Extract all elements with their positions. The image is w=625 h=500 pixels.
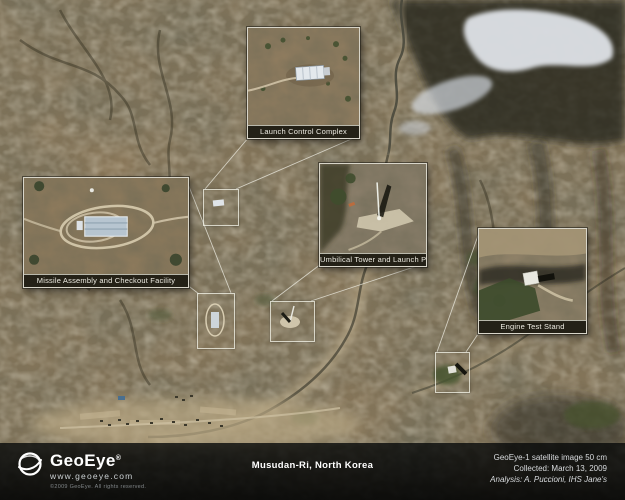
target-box-umbilical-tower-launch-pad	[270, 301, 315, 342]
inset-label-engine-test-stand: Engine Test Stand	[479, 320, 586, 333]
target-box-launch-control-complex	[203, 189, 239, 226]
inset-photo-launch-control-complex	[248, 28, 359, 125]
brand-copyright: ©2009 GeoEye. All rights reserved.	[50, 484, 146, 490]
inset-label-missile-assembly-facility: Missile Assembly and Checkout Facility	[24, 274, 188, 287]
inset-launch-control-complex: Launch Control Complex	[247, 27, 360, 139]
inset-photo-missile-assembly-facility	[24, 178, 188, 274]
inset-engine-test-stand: Engine Test Stand	[478, 228, 587, 334]
target-box-engine-test-stand	[435, 352, 470, 393]
image-credits: GeoEye-1 satellite image 50 cm Collected…	[490, 452, 607, 485]
inset-photo-engine-test-stand	[479, 229, 586, 320]
credit-sensor: GeoEye-1 satellite image 50 cm	[490, 452, 607, 463]
credit-collection-date: Collected: March 13, 2009	[490, 463, 607, 474]
inset-label-umbilical-tower-launch-pad: Umbilical Tower and Launch Pad	[320, 253, 426, 266]
inset-label-launch-control-complex: Launch Control Complex	[248, 125, 359, 138]
footer-bar: GeoEye® www.geoeye.com ©2009 GeoEye. All…	[0, 443, 625, 500]
inset-missile-assembly-facility: Missile Assembly and Checkout Facility	[23, 177, 189, 288]
target-box-missile-assembly-facility	[197, 293, 235, 349]
inset-photo-umbilical-tower-launch-pad	[320, 164, 426, 253]
inset-umbilical-tower-launch-pad: Umbilical Tower and Launch Pad	[319, 163, 427, 267]
brand-url: www.geoeye.com	[50, 471, 146, 481]
credit-analysis: Analysis: A. Puccioni, IHS Jane's	[490, 474, 607, 485]
satellite-annotation-graphic: Launch Control Complex Missile Assembly …	[0, 0, 625, 500]
